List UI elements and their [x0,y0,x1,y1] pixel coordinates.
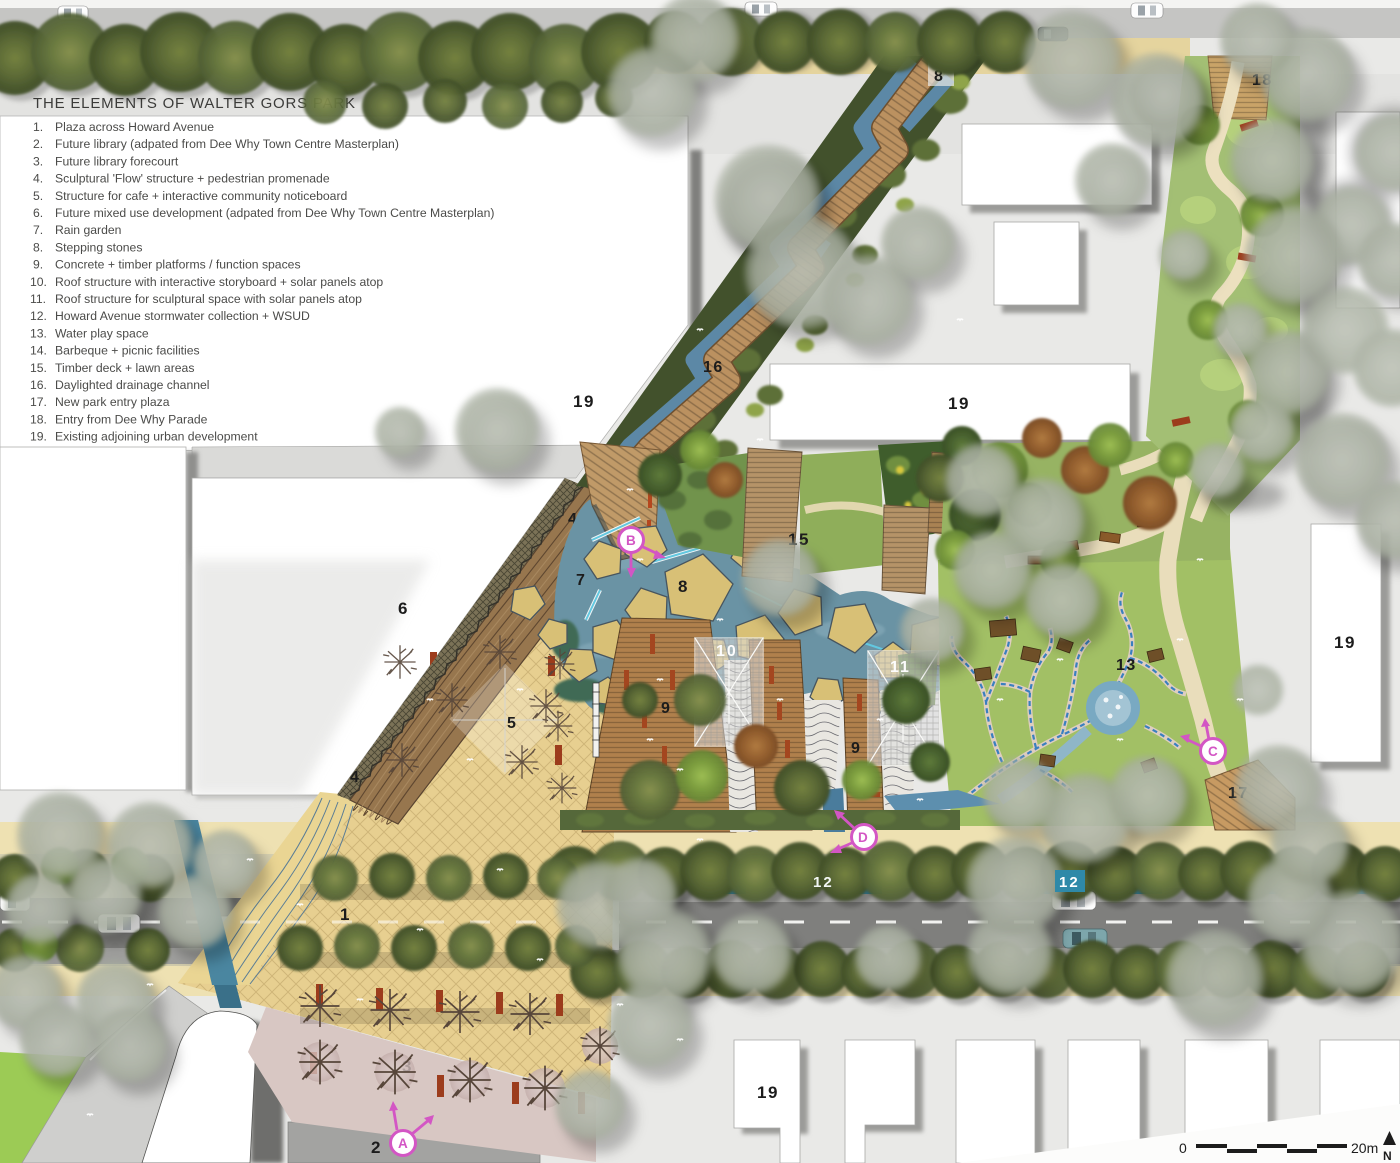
svg-text:Plaza across Howard Avenue: Plaza across Howard Avenue [55,120,214,134]
svg-text:Future library forecourt: Future library forecourt [55,154,179,168]
svg-text:Howard Avenue stormwater colle: Howard Avenue stormwater collection + WS… [55,309,310,323]
svg-text:Timber deck + lawn areas: Timber deck + lawn areas [55,361,194,375]
svg-text:11: 11 [890,659,911,676]
svg-text:Entry from Dee Why Parade: Entry from Dee Why Parade [55,412,208,426]
svg-text:20m: 20m [1351,1140,1378,1156]
svg-text:Concrete + timber platforms /: Concrete + timber platforms / function s… [55,258,301,272]
svg-text:10: 10 [716,643,738,660]
svg-text:12.: 12. [30,309,47,323]
svg-text:6.: 6. [33,206,43,220]
svg-text:A: A [398,1136,408,1151]
svg-text:New park entry plaza: New park entry plaza [55,395,170,409]
svg-text:7.: 7. [33,223,43,237]
svg-text:Sculptural 'Flow' structure +: Sculptural 'Flow' structure + pedestrian… [55,172,330,186]
svg-text:9: 9 [661,700,671,717]
svg-text:7: 7 [576,572,586,589]
svg-text:Barbeque + picnic facilities: Barbeque + picnic facilities [55,344,200,358]
svg-text:5.: 5. [33,189,43,203]
svg-text:10.: 10. [30,275,47,289]
svg-text:5: 5 [507,715,517,732]
svg-text:8.: 8. [33,240,43,254]
svg-text:0: 0 [1179,1140,1187,1156]
svg-text:Roof structure for sculptural: Roof structure for sculptural space with… [55,292,362,306]
svg-text:Existing adjoining urban devel: Existing adjoining urban development [55,430,258,444]
svg-text:C: C [1208,744,1218,759]
svg-text:8: 8 [678,577,689,596]
svg-text:19: 19 [1334,633,1356,652]
svg-text:B: B [626,533,636,548]
svg-text:1.: 1. [33,120,43,134]
svg-text:13: 13 [1116,657,1137,674]
svg-text:Water play space: Water play space [55,326,149,340]
svg-text:19.: 19. [30,430,47,444]
svg-text:13.: 13. [30,326,47,340]
svg-text:Roof structure with interactiv: Roof structure with interactive storyboa… [55,275,383,289]
svg-text:N: N [1383,1149,1392,1163]
svg-text:19: 19 [757,1083,779,1102]
svg-text:18.: 18. [30,412,47,426]
svg-text:16.: 16. [30,378,47,392]
svg-text:19: 19 [948,394,970,413]
svg-text:6: 6 [398,599,409,618]
svg-text:1: 1 [340,905,351,924]
svg-text:9.: 9. [33,258,43,272]
svg-text:11.: 11. [30,292,46,306]
svg-text:Stepping stones: Stepping stones [55,240,142,254]
svg-text:14.: 14. [30,344,47,358]
svg-text:3.: 3. [33,154,43,168]
svg-text:2.: 2. [33,137,43,151]
svg-text:16: 16 [703,359,724,376]
svg-text:Future mixed use development (: Future mixed use development (adpated fr… [55,206,494,220]
svg-text:12: 12 [1059,874,1080,891]
svg-text:9: 9 [851,740,861,757]
svg-text:Rain garden: Rain garden [55,223,121,237]
svg-text:12: 12 [813,874,834,891]
svg-text:19: 19 [573,392,595,411]
svg-text:17.: 17. [30,395,47,409]
svg-text:Future library (adpated from D: Future library (adpated from Dee Why Tow… [55,137,399,151]
svg-text:4: 4 [350,769,360,786]
svg-text:Structure for cafe + interacti: Structure for cafe + interactive communi… [55,189,347,203]
svg-text:D: D [858,830,868,845]
svg-text:15.: 15. [30,361,47,375]
svg-text:2: 2 [371,1138,382,1157]
svg-text:4.: 4. [33,172,43,186]
svg-text:Daylighted drainage channel: Daylighted drainage channel [55,378,210,392]
